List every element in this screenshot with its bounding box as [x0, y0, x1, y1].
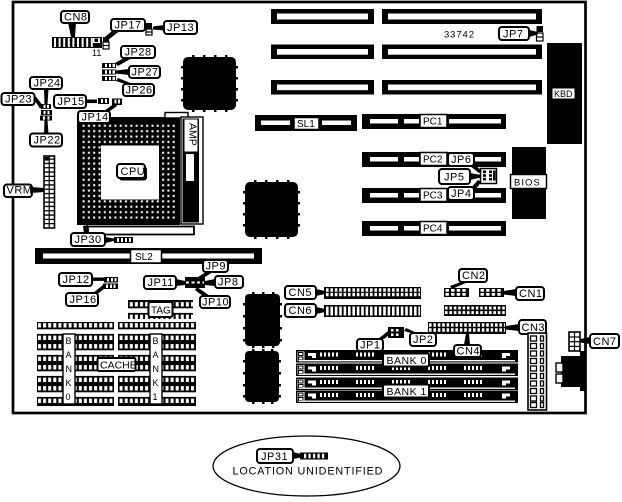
svg-text:PC4: PC4: [423, 224, 443, 235]
svg-text:JP9: JP9: [206, 261, 226, 273]
svg-text:PC1: PC1: [423, 117, 443, 128]
svg-text:PC3: PC3: [423, 191, 443, 202]
svg-text:CN5: CN5: [289, 287, 313, 299]
svg-text:JP10: JP10: [202, 297, 229, 309]
svg-text:KBD: KBD: [554, 89, 573, 99]
svg-text:JP1: JP1: [360, 340, 380, 352]
svg-text:AMP: AMP: [187, 123, 199, 146]
svg-text:JP28: JP28: [125, 47, 152, 59]
svg-text:JP8: JP8: [218, 277, 238, 289]
svg-text:SL2: SL2: [135, 252, 153, 263]
svg-text:JP31: JP31: [261, 451, 288, 463]
svg-text:A: A: [153, 350, 159, 360]
svg-text:B: B: [153, 336, 159, 346]
svg-text:JP4: JP4: [451, 188, 471, 200]
svg-text:JP11: JP11: [148, 277, 174, 289]
svg-text:BANK 1: BANK 1: [387, 386, 427, 398]
svg-text:JP15: JP15: [58, 96, 85, 108]
svg-text:CN1: CN1: [519, 288, 543, 300]
svg-text:JP26: JP26: [126, 85, 153, 97]
svg-text:K: K: [66, 378, 72, 388]
svg-text:JP30: JP30: [75, 234, 102, 246]
svg-text:N: N: [66, 364, 73, 374]
svg-text:JP7: JP7: [503, 29, 523, 41]
svg-text:TAG: TAG: [151, 306, 171, 317]
svg-text:CN7: CN7: [593, 336, 617, 348]
svg-text:0: 0: [66, 392, 71, 402]
svg-text:11: 11: [92, 48, 101, 58]
svg-text:33742: 33742: [444, 30, 475, 41]
svg-text:SL1: SL1: [297, 119, 315, 130]
svg-text:B: B: [66, 336, 72, 346]
svg-text:PC2: PC2: [423, 155, 443, 166]
svg-text:VRM: VRM: [7, 185, 33, 197]
svg-text:JP22: JP22: [34, 135, 61, 147]
svg-text:JP27: JP27: [132, 67, 159, 79]
svg-text:A: A: [66, 350, 72, 360]
svg-text:JP2: JP2: [413, 334, 433, 346]
svg-text:BANK 0: BANK 0: [387, 355, 427, 367]
svg-text:JP23: JP23: [5, 94, 32, 106]
svg-text:JP14: JP14: [82, 112, 109, 124]
svg-text:LOCATION UNIDENTIFIED: LOCATION UNIDENTIFIED: [233, 466, 384, 478]
svg-text:JP5: JP5: [444, 172, 464, 184]
svg-text:CN6: CN6: [289, 305, 313, 317]
svg-text:CN2: CN2: [462, 270, 486, 282]
svg-text:JP24: JP24: [34, 78, 61, 90]
svg-text:JP13: JP13: [167, 22, 194, 34]
svg-text:BIOS: BIOS: [514, 178, 541, 189]
svg-text:K: K: [153, 378, 159, 388]
svg-text:CN8: CN8: [64, 12, 88, 24]
svg-text:CACHE: CACHE: [100, 360, 137, 372]
svg-text:1: 1: [153, 392, 158, 402]
svg-text:JP12: JP12: [63, 274, 90, 286]
svg-text:JP17: JP17: [115, 20, 142, 32]
svg-text:JP16: JP16: [70, 294, 97, 306]
svg-text:CN4: CN4: [457, 346, 481, 358]
svg-text:N: N: [153, 364, 160, 374]
svg-text:JP6: JP6: [451, 154, 471, 166]
svg-text:CPU: CPU: [121, 166, 146, 178]
